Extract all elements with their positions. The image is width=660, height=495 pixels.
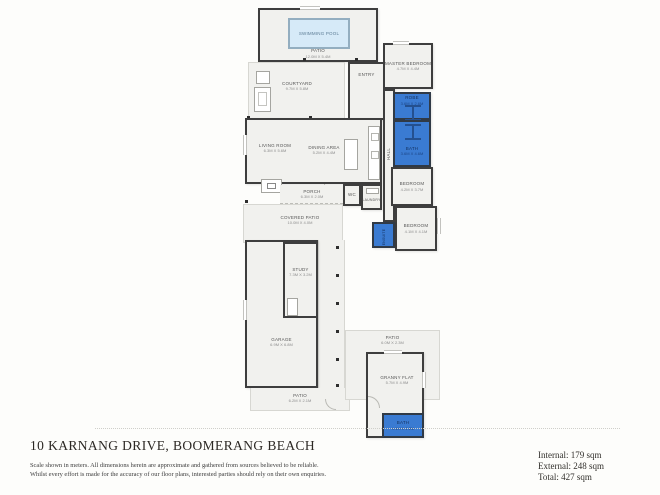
wardrobe-rail-icon (405, 124, 421, 140)
porch-area (280, 185, 343, 204)
window-icon (243, 300, 247, 320)
ensuite-room: ENSUITE (372, 222, 395, 248)
room-label: SWIMMING POOL (299, 31, 339, 36)
area-summary: Internal: 179 sqm External: 248 sqm Tota… (538, 450, 604, 483)
fireplace-inner (267, 183, 276, 189)
room-label: GRANNY FLAT (380, 375, 413, 381)
post-icon (336, 358, 339, 361)
fixture-inner (258, 92, 267, 106)
room-label: ROBE (405, 95, 419, 101)
bath-room: BATH 3.6M X 4.6M (393, 120, 431, 167)
post-icon (303, 58, 306, 61)
window-icon (393, 41, 409, 45)
internal-area: Internal: 179 sqm (538, 450, 604, 461)
granny-flat: GRANNY FLAT 5.7M X 4.9M BATH 4.1M X 2.2M (366, 352, 424, 438)
robe-room: ROBE 3.6M X 2.6M (393, 92, 431, 120)
post-icon (336, 246, 339, 249)
garage-label: GARAGE 6.9M X 6.8M (247, 334, 316, 350)
floor-plan-page: SWIMMING POOL PATIO 12.0M X 5.4M COURTYA… (0, 0, 660, 495)
laundry-bench-icon (366, 188, 379, 194)
laundry-room: LAUNDRY (361, 184, 382, 210)
post-icon (336, 330, 339, 333)
pool-deck: SWIMMING POOL (258, 8, 378, 62)
fireplace-icon (261, 179, 282, 193)
room-label: WC (348, 192, 356, 198)
bedroom-1-label: BEDROOM 4.2M X 3.7M (393, 169, 431, 204)
room-label: BEDROOM (404, 223, 429, 229)
entry-room (348, 62, 385, 120)
bedroom-2-label: BEDROOM 4.1M X 4.1M (397, 208, 435, 249)
post-icon (245, 200, 248, 203)
page-title: 10 KARNANG DRIVE, BOOMERANG BEACH (30, 438, 315, 454)
wc-label: WC (345, 186, 359, 204)
kitchen-island-icon (344, 139, 358, 170)
window-icon (243, 135, 247, 155)
room-dims: 7.3M X 3.2M (289, 272, 312, 277)
room-label: HALL (386, 148, 392, 160)
ensuite-label: ENSUITE (379, 221, 389, 253)
laundry-label: LAUNDRY (363, 194, 380, 206)
granny-flat-bath-label: BATH 4.1M X 2.2M (384, 415, 422, 436)
outdoor-fixture-icon (254, 87, 271, 112)
covered-patio-area (243, 204, 343, 243)
room-label: BATH (406, 146, 418, 152)
room-dims: 6.9M X 6.8M (270, 342, 293, 347)
room-label: BATH (397, 420, 409, 426)
room-label: STUDY (292, 267, 308, 273)
post-icon (336, 302, 339, 305)
post-icon (355, 58, 358, 61)
room-label: LAUNDRY (362, 198, 380, 202)
room-dims: 4.1M X 4.1M (405, 229, 428, 234)
disclaimer-line-2: Whilst every effort is made for the accu… (30, 471, 326, 480)
living-block (245, 118, 382, 184)
post-icon (336, 384, 339, 387)
swimming-pool: SWIMMING POOL (288, 18, 350, 49)
room-dims: 4.7M X 4.4M (397, 66, 420, 71)
bedroom-2: BEDROOM 4.1M X 4.1M (395, 206, 437, 251)
bath-label: BATH 3.6M X 4.6M (395, 144, 429, 158)
scale-ruler (95, 428, 620, 429)
total-area: Total: 427 sqm (538, 472, 604, 483)
room-label: GARAGE (271, 337, 291, 343)
closet-icon (287, 298, 298, 316)
walkway (318, 240, 345, 390)
master-bedroom: MASTER BEDROOM 4.7M X 4.4M (383, 43, 433, 89)
window-icon (437, 218, 441, 234)
study-room: STUDY 7.3M X 3.2M (283, 242, 318, 318)
room-label: MASTER BEDROOM (385, 61, 431, 67)
wardrobe-rail-icon (405, 105, 421, 121)
room-dims: 4.2M X 3.7M (401, 187, 424, 192)
bbq-fixture-icon (256, 71, 270, 84)
room-label: BEDROOM (400, 181, 425, 187)
granny-flat-label: GRANNY FLAT 5.7M X 4.9M (374, 372, 420, 388)
room-label: ENSUITE (382, 229, 386, 246)
bedroom-1: BEDROOM 4.2M X 3.7M (391, 167, 433, 206)
external-area: External: 248 sqm (538, 461, 604, 472)
window-icon (384, 350, 402, 354)
appliance-icon (371, 151, 379, 159)
kitchen-counter-icon (368, 126, 380, 180)
room-dims: 3.6M X 4.6M (401, 151, 424, 156)
study-label: STUDY 7.3M X 3.2M (285, 264, 316, 280)
room-dims: 5.7M X 4.9M (386, 380, 409, 385)
master-bedroom-label: MASTER BEDROOM 4.7M X 4.4M (385, 45, 431, 87)
granny-flat-bath: BATH 4.1M X 2.2M (382, 413, 424, 438)
wc-room: WC (343, 184, 361, 206)
window-icon (422, 372, 426, 388)
disclaimer-text: Scale shown in meters. All dimensions he… (30, 462, 326, 479)
disclaimer-line-1: Scale shown in meters. All dimensions he… (30, 462, 326, 471)
post-icon (336, 274, 339, 277)
garage-block: STUDY 7.3M X 3.2M GARAGE 6.9M X 6.8M (245, 240, 318, 388)
appliance-icon (371, 133, 379, 141)
window-icon (300, 6, 320, 10)
